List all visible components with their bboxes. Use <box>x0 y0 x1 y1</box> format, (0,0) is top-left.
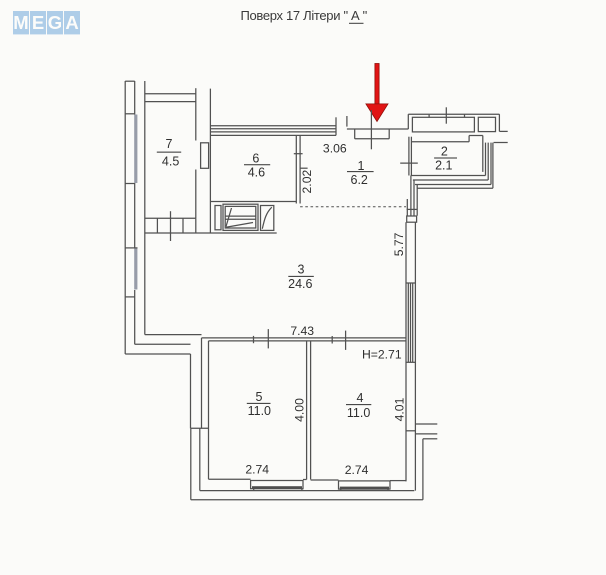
svg-text:G: G <box>48 12 62 33</box>
svg-text:11.0: 11.0 <box>347 406 370 420</box>
svg-text:5.77: 5.77 <box>392 232 406 256</box>
svg-text:H=2.71: H=2.71 <box>362 347 402 361</box>
svg-text:2.74: 2.74 <box>245 463 269 477</box>
svg-text:1: 1 <box>358 159 365 173</box>
svg-text:24.6: 24.6 <box>288 277 312 291</box>
svg-text:E: E <box>32 12 44 33</box>
svg-text:6.2: 6.2 <box>351 173 368 187</box>
svg-text:6: 6 <box>252 151 259 165</box>
svg-text:A: A <box>65 12 78 33</box>
svg-text:2.02: 2.02 <box>300 170 314 194</box>
svg-text:4.6: 4.6 <box>248 166 265 180</box>
svg-text:3.06: 3.06 <box>323 141 347 155</box>
svg-text:5: 5 <box>256 390 263 404</box>
svg-text:4.01: 4.01 <box>393 397 407 421</box>
svg-text:7.43: 7.43 <box>290 324 314 338</box>
svg-text:2.74: 2.74 <box>345 463 369 477</box>
svg-text:4.5: 4.5 <box>162 154 179 168</box>
svg-text:11.0: 11.0 <box>248 404 271 418</box>
svg-text:4.00: 4.00 <box>293 398 307 422</box>
svg-text:3: 3 <box>298 263 305 277</box>
svg-text:2.1: 2.1 <box>435 159 452 173</box>
svg-text:Поверх 17 Літери " А ": Поверх 17 Літери " А " <box>241 8 368 23</box>
svg-text:4: 4 <box>357 391 364 405</box>
svg-text:7: 7 <box>166 137 173 151</box>
svg-text:M: M <box>13 12 28 33</box>
svg-text:2: 2 <box>441 144 448 158</box>
